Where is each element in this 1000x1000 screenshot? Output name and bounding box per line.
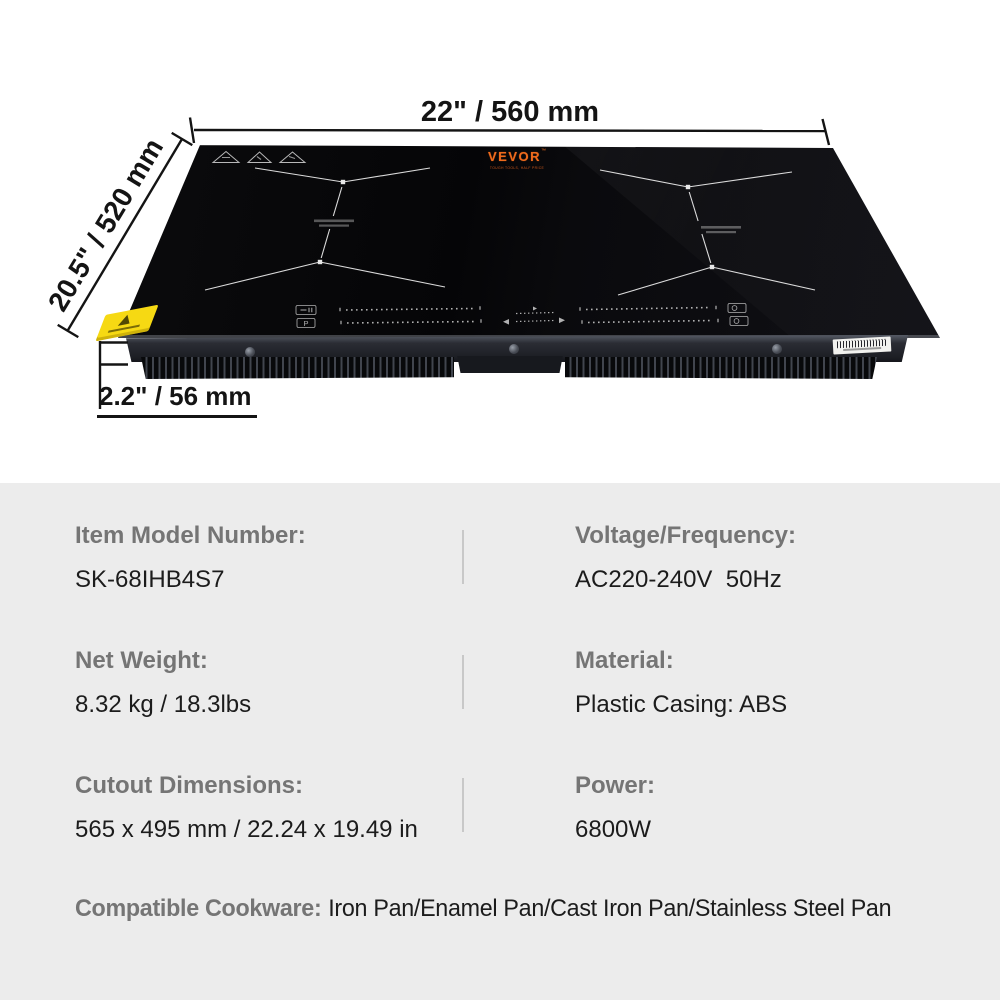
- spec-label: Cutout Dimensions:: [75, 772, 418, 800]
- spec-value: 565 x 495 mm / 22.24 x 19.49 in: [75, 815, 418, 845]
- spec-power: Power: 6800W: [575, 772, 655, 845]
- product-spec-sheet: P: [0, 0, 1000, 1000]
- spec-value: AC220-240V 50Hz: [575, 565, 796, 595]
- column-divider: [462, 778, 464, 832]
- spec-value: SK-68IHB4S7: [75, 565, 306, 595]
- spec-value: 8.32 kg / 18.3lbs: [75, 690, 251, 720]
- spec-label: Item Model Number:: [75, 522, 306, 550]
- spec-compatible-cookware: Compatible Cookware:Iron Pan/Enamel Pan/…: [75, 895, 891, 923]
- spec-label: Material:: [575, 647, 787, 675]
- spec-label: Voltage/Frequency:: [575, 522, 796, 550]
- spec-label: Compatible Cookware:: [75, 895, 321, 922]
- spec-cutout-dimensions: Cutout Dimensions: 565 x 495 mm / 22.24 …: [75, 772, 418, 845]
- width-dimension-line: [194, 130, 826, 131]
- spec-voltage-frequency: Voltage/Frequency: AC220-240V 50Hz: [575, 522, 796, 595]
- spec-value: 6800W: [575, 815, 655, 845]
- spec-value: Iron Pan/Enamel Pan/Cast Iron Pan/Stainl…: [328, 895, 891, 922]
- product-scene: P: [0, 0, 1000, 483]
- height-dimension-label: 2.2" / 56 mm: [97, 381, 257, 418]
- column-divider: [462, 530, 464, 584]
- spec-net-weight: Net Weight: 8.32 kg / 18.3lbs: [75, 647, 251, 720]
- spec-item-model: Item Model Number: SK-68IHB4S7: [75, 522, 306, 595]
- width-dimension-label: 22" / 560 mm: [310, 96, 710, 129]
- spec-label: Power:: [575, 772, 655, 800]
- spec-label: Net Weight:: [75, 647, 251, 675]
- spec-panel: Item Model Number: SK-68IHB4S7 Voltage/F…: [0, 483, 1000, 1000]
- spec-material: Material: Plastic Casing: ABS: [575, 647, 787, 720]
- spec-value: Plastic Casing: ABS: [575, 690, 787, 720]
- column-divider: [462, 655, 464, 709]
